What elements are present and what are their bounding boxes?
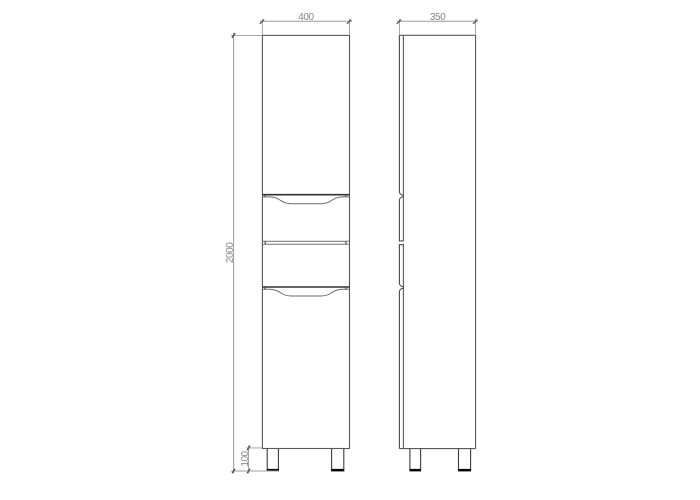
svg-text:400: 400 [298,12,314,23]
svg-text:350: 350 [430,12,446,23]
svg-text:100: 100 [240,450,251,466]
svg-text:2000: 2000 [225,242,236,263]
